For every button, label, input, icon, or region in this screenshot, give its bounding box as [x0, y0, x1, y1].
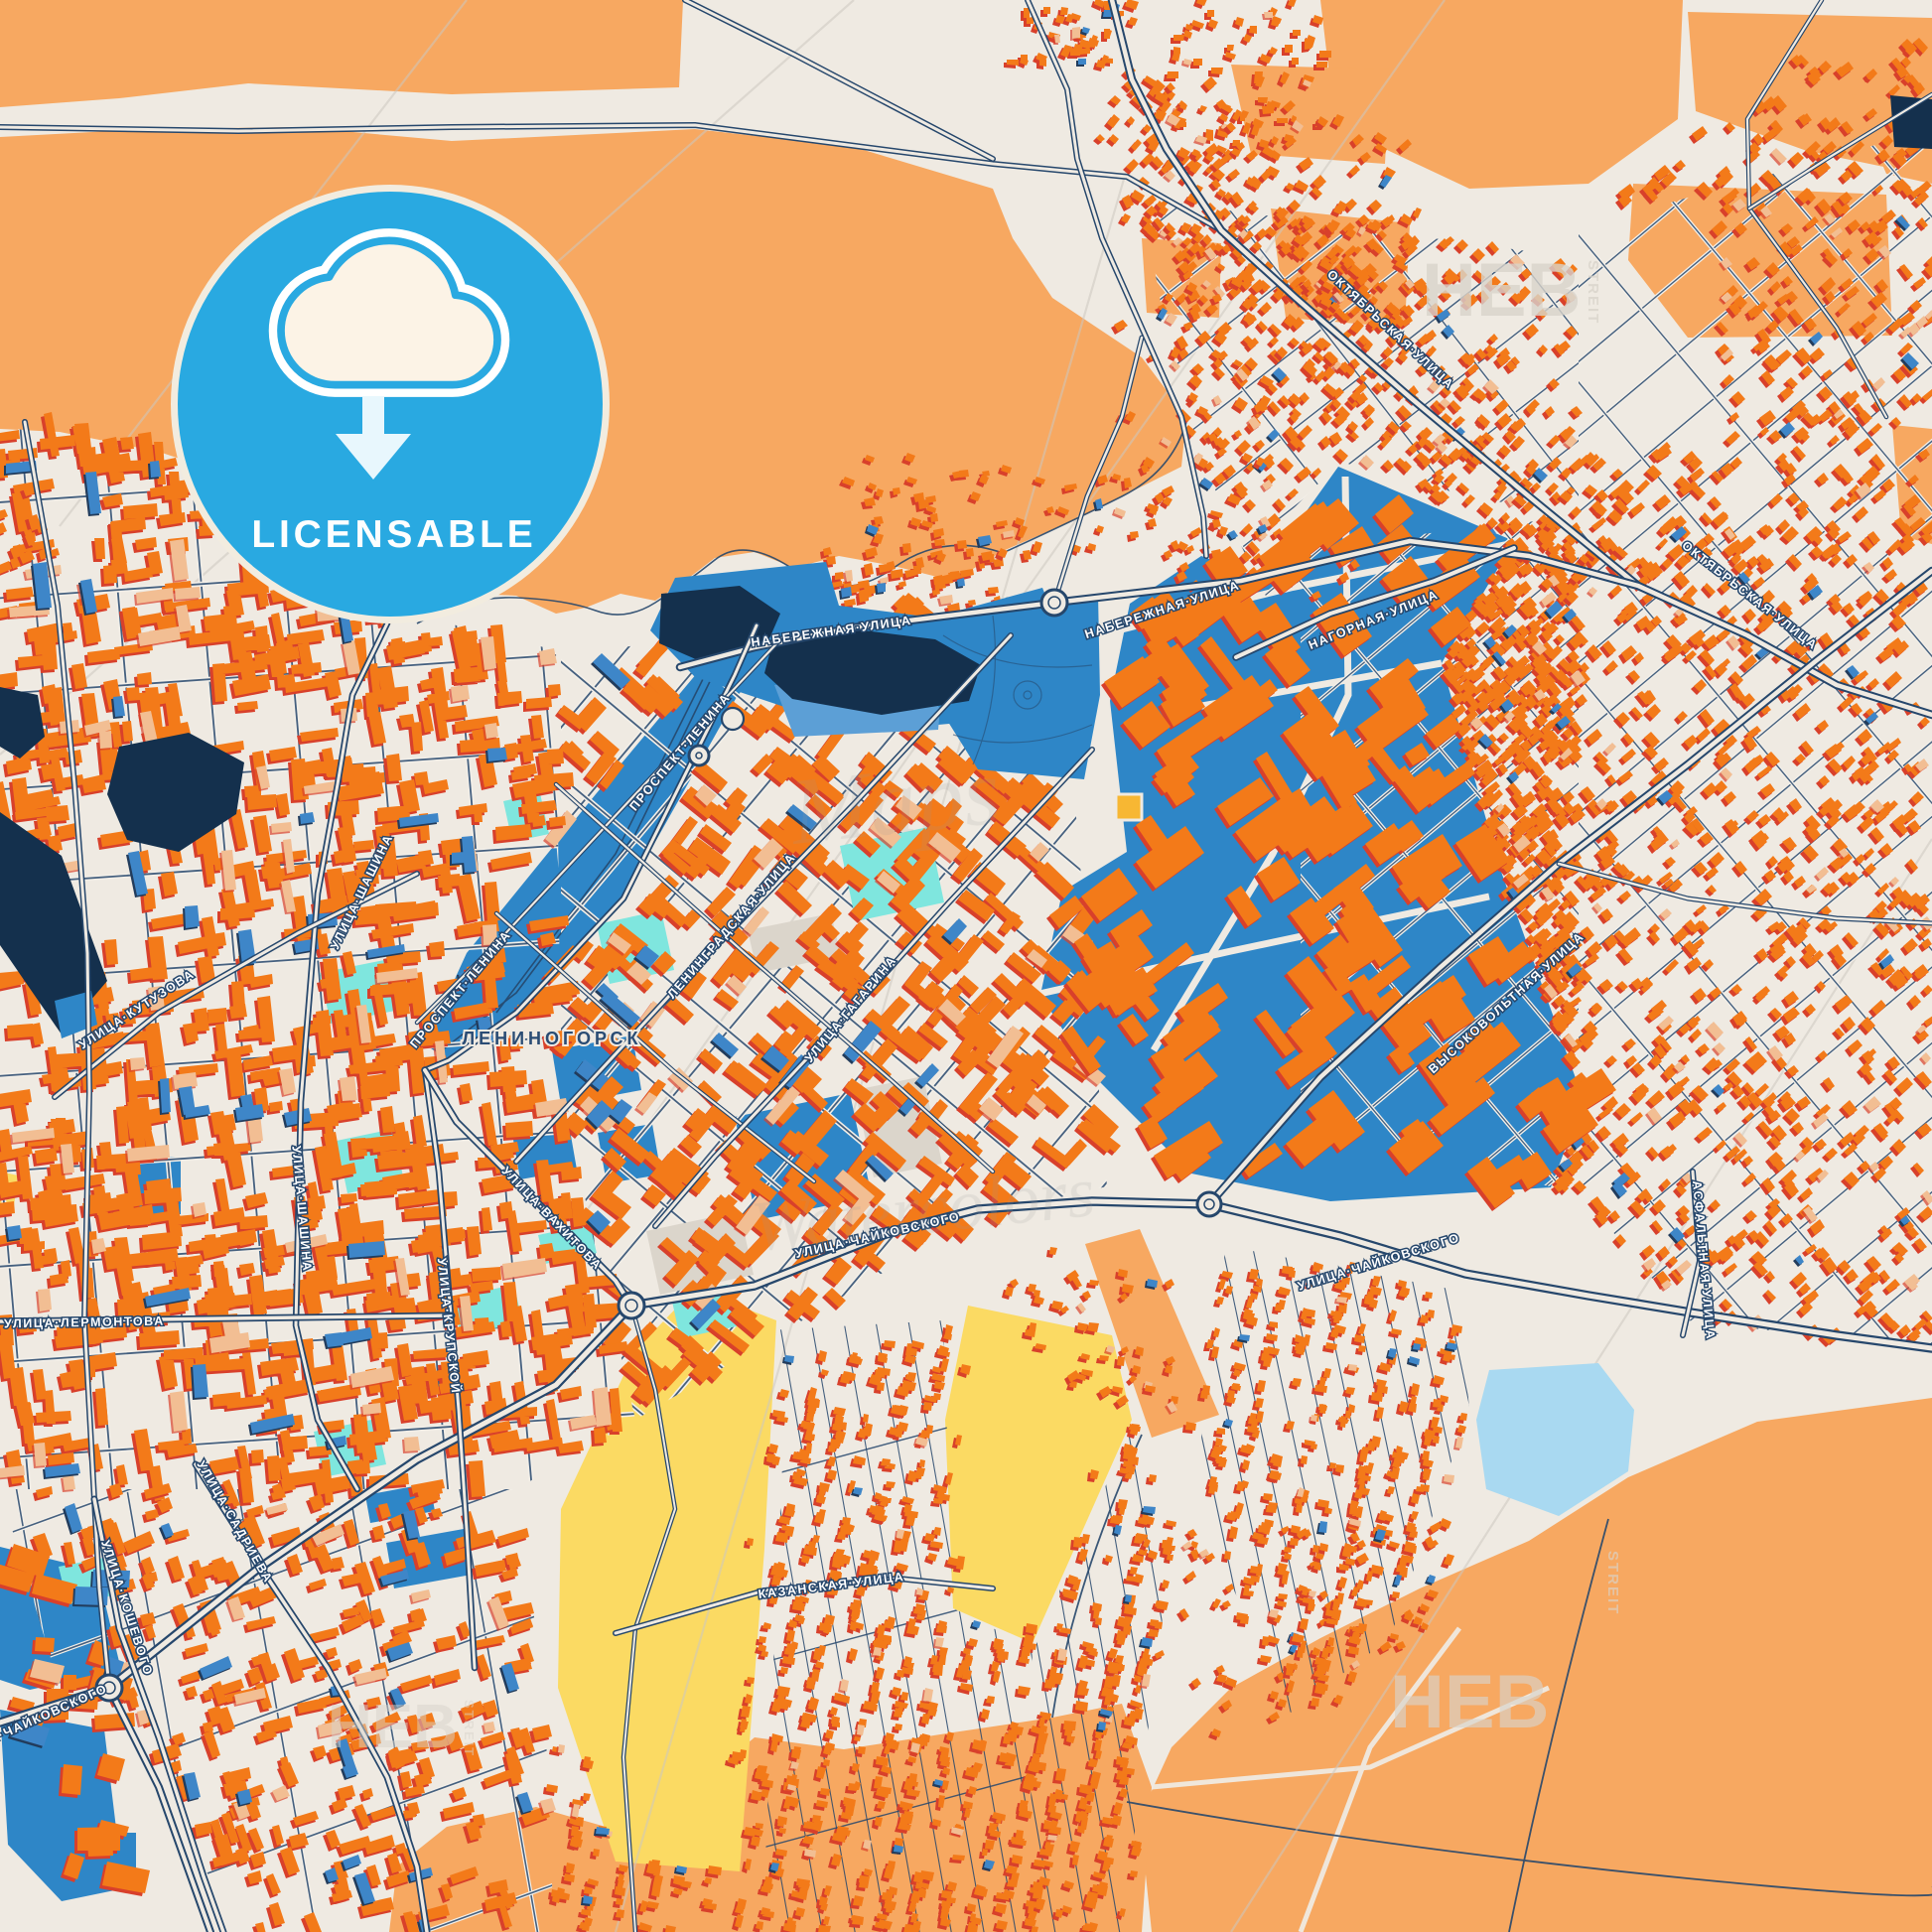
svg-text:HEB: HEB — [1422, 248, 1581, 333]
svg-text:ЛЕНИНОГОРСК: ЛЕНИНОГОРСК — [462, 1029, 641, 1048]
svg-text:STREIT: STREIT — [1585, 260, 1601, 325]
svg-text:HEB: HEB — [328, 1693, 458, 1761]
svg-text:HEB: HEB — [1390, 1660, 1549, 1744]
svg-text:Maps: Maps — [783, 738, 1005, 865]
svg-text:LICENSABLE: LICENSABLE — [251, 513, 536, 556]
svg-text:STREIT: STREIT — [462, 1700, 477, 1757]
svg-text:УЛИЦА·ЛЕРМОНТОВА: УЛИЦА·ЛЕРМОНТОВА — [4, 1314, 165, 1331]
svg-text:STREIT: STREIT — [1604, 1551, 1621, 1615]
